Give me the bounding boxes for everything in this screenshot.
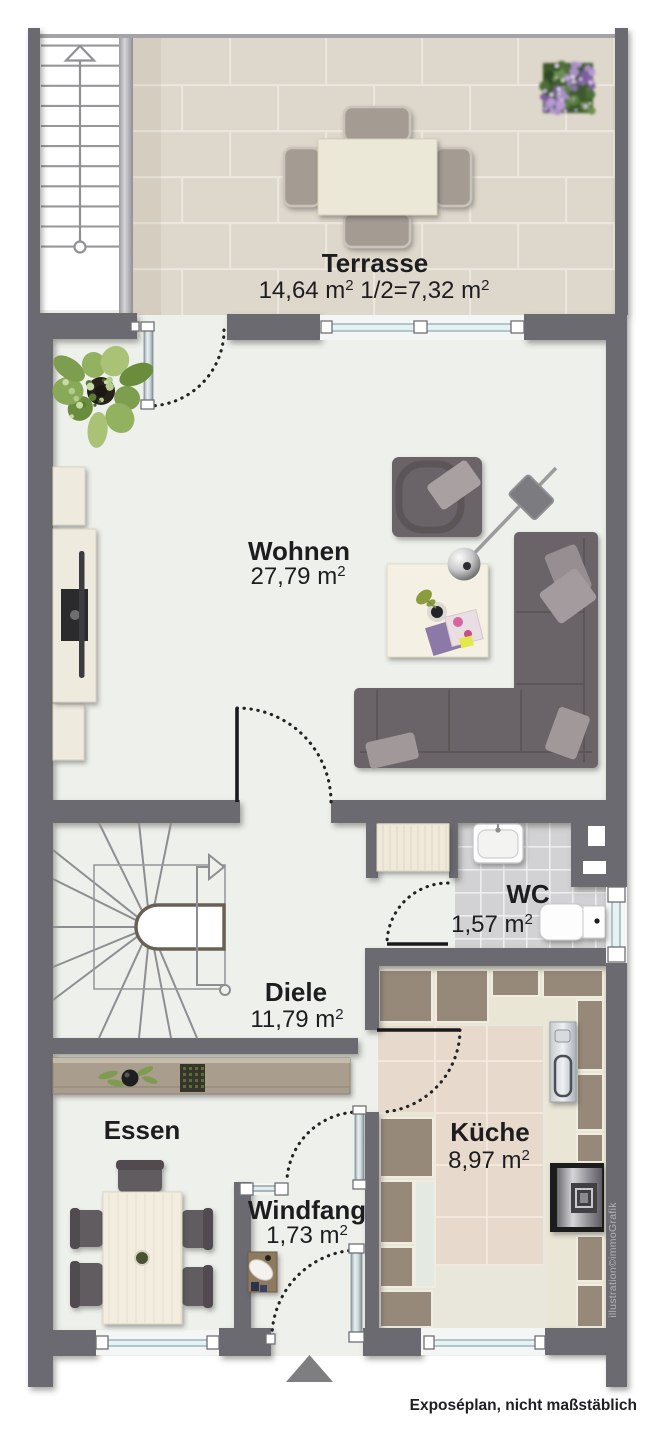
svg-text:Diele: Diele — [265, 977, 327, 1007]
svg-text:WC: WC — [506, 879, 550, 909]
svg-text:Essen: Essen — [104, 1115, 181, 1145]
svg-text:Exposéplan, nicht maßstäblich: Exposéplan, nicht maßstäblich — [410, 1397, 637, 1414]
svg-text:11,79 m2: 11,79 m2 — [250, 1006, 343, 1033]
svg-text:1,73 m2: 1,73 m2 — [266, 1222, 348, 1249]
svg-text:Windfang: Windfang — [248, 1195, 366, 1225]
svg-text:27,79 m2: 27,79 m2 — [250, 563, 345, 590]
svg-text:8,97 m2: 8,97 m2 — [448, 1147, 530, 1174]
svg-text:1,57 m2: 1,57 m2 — [451, 911, 533, 938]
svg-text:14,64 m2 1/2=7,32 m2: 14,64 m2 1/2=7,32 m2 — [259, 277, 490, 304]
svg-text:Küche: Küche — [450, 1117, 529, 1147]
svg-text:Terrasse: Terrasse — [322, 248, 429, 278]
svg-text:Wohnen: Wohnen — [248, 536, 350, 566]
svg-text:illustration©immoGrafik: illustration©immoGrafik — [607, 1202, 619, 1318]
